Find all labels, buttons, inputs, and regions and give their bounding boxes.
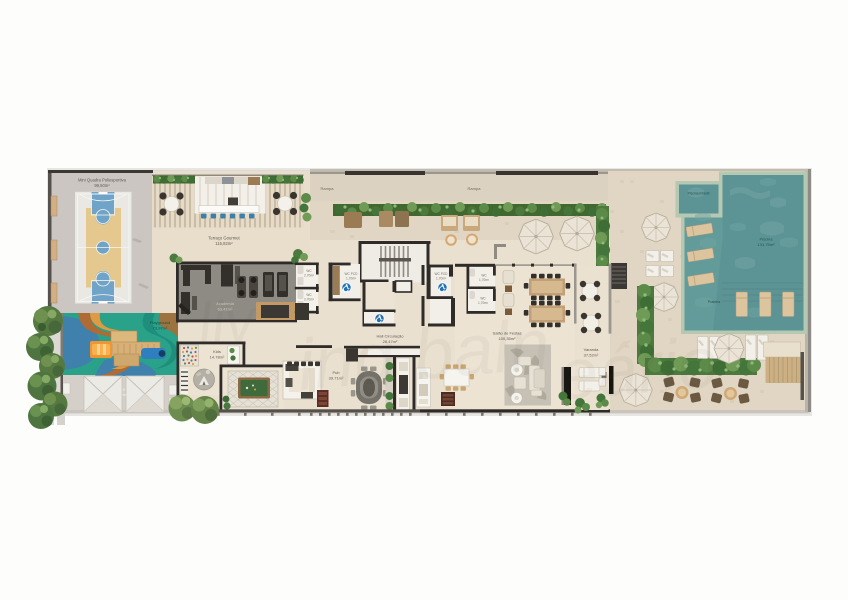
svg-text:Mini Quadra Poliesportiva: Mini Quadra Poliesportiva <box>78 178 127 183</box>
svg-text:131,75m²: 131,75m² <box>758 242 776 247</box>
svg-text:1,70m²: 1,70m² <box>346 276 356 280</box>
svg-text:WC: WC <box>306 269 312 273</box>
svg-text:1,70m²: 1,70m² <box>478 301 488 305</box>
svg-text:WC: WC <box>306 293 312 297</box>
svg-text:99,50m²: 99,50m² <box>94 183 110 188</box>
svg-text:Terraço Gourmet: Terraço Gourmet <box>208 236 240 241</box>
svg-text:WC: WC <box>480 297 486 301</box>
svg-text:eário: eário <box>554 322 720 416</box>
svg-text:2,70m²: 2,70m² <box>304 297 314 301</box>
svg-text:Piscina Infantil: Piscina Infantil <box>688 192 710 196</box>
svg-text:73,97m²: 73,97m² <box>153 326 168 331</box>
svg-text:WC PCD: WC PCD <box>345 272 359 276</box>
svg-text:1,70m²: 1,70m² <box>479 278 489 282</box>
svg-text:2,70m²: 2,70m² <box>304 273 314 277</box>
svg-text:1,70m²: 1,70m² <box>436 276 446 280</box>
svg-text:Prainha: Prainha <box>708 300 720 304</box>
svg-text:liv: liv <box>195 286 260 358</box>
svg-text:WC PCD: WC PCD <box>435 272 449 276</box>
svg-text:Rampa: Rampa <box>321 186 335 191</box>
svg-text:115,82m²: 115,82m² <box>215 241 233 246</box>
svg-text:WC: WC <box>481 274 487 278</box>
svg-text:Piscina: Piscina <box>760 237 774 242</box>
svg-text:Rampa: Rampa <box>468 186 482 191</box>
svg-text:Playground: Playground <box>150 320 170 325</box>
